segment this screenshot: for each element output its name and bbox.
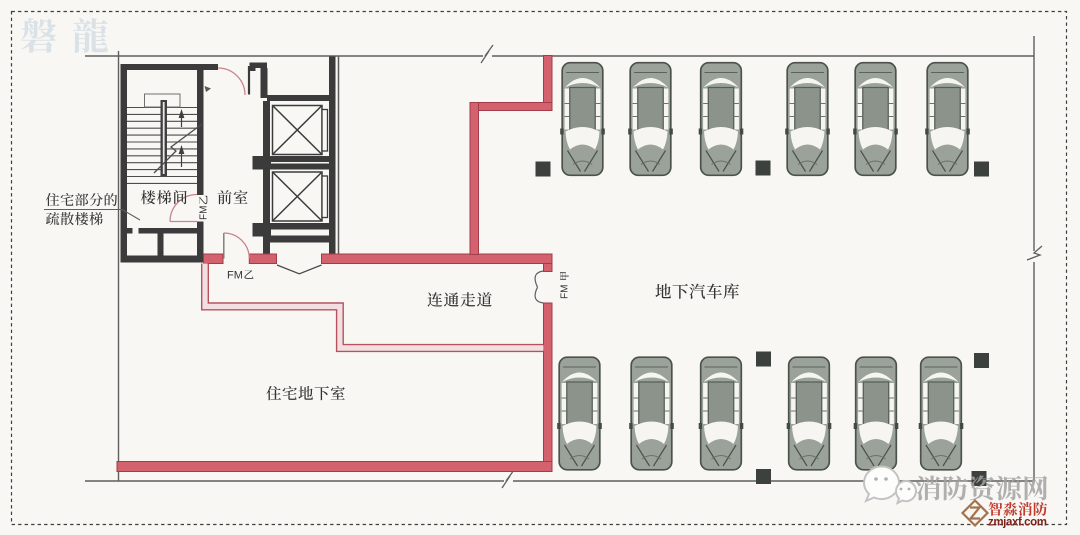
svg-text:FM: FM — [227, 270, 243, 282]
svg-text:zmjaxf.com: zmjaxf.com — [988, 517, 1047, 529]
svg-text:FM: FM — [199, 206, 210, 220]
svg-text:FM: FM — [560, 285, 571, 299]
